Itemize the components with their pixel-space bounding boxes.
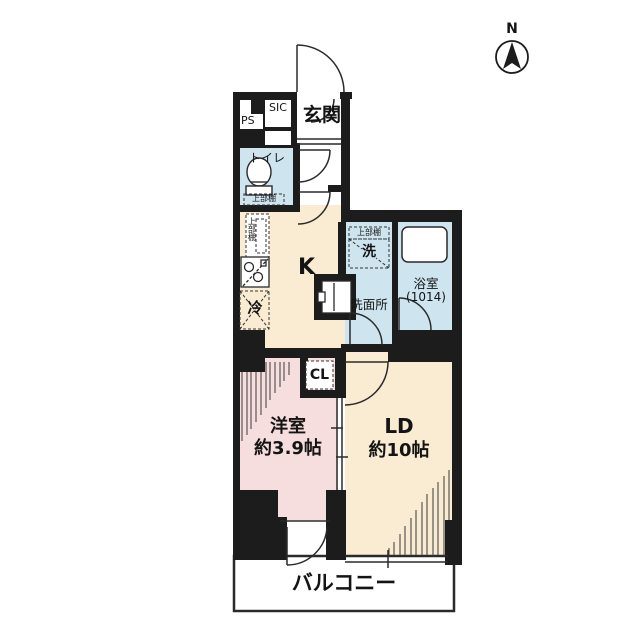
closet-label: CL bbox=[306, 368, 333, 383]
living-dining-size-label: 約10帖 bbox=[362, 442, 436, 461]
compass-icon bbox=[496, 41, 528, 73]
refrigerator-label: 冷 bbox=[246, 301, 264, 317]
western-room-label: 洋室 bbox=[250, 418, 326, 437]
ps-label: PS bbox=[241, 115, 255, 127]
genkan-label: 玄関 bbox=[292, 106, 352, 126]
washer-label: 洗 bbox=[353, 245, 385, 260]
kitchen-shelf-label: 上部棚 bbox=[247, 217, 255, 257]
bathroom-label: 浴室 bbox=[404, 277, 448, 290]
step-niche bbox=[265, 131, 291, 145]
kitchen-label: K bbox=[298, 256, 315, 279]
living-dining-label: LD bbox=[362, 416, 436, 437]
western-room-size-label: 約3.9帖 bbox=[250, 440, 326, 459]
stove-icon bbox=[241, 257, 269, 287]
bathtub-icon bbox=[402, 227, 447, 262]
floor-plan bbox=[0, 0, 640, 640]
sic-label: SIC bbox=[265, 102, 291, 114]
compass-north-label: N bbox=[504, 22, 520, 37]
toilet-door-swing-icon bbox=[298, 150, 330, 182]
washroom-shelf-label: 上部棚 bbox=[349, 229, 389, 237]
balcony-label: バルコニー bbox=[288, 572, 400, 594]
washroom-label: 洗面所 bbox=[344, 298, 394, 311]
bathroom-size-label: (1014) bbox=[404, 291, 448, 304]
toilet-shelf-label: 上部棚 bbox=[244, 195, 284, 203]
toilet-label: トイレ bbox=[244, 152, 290, 165]
